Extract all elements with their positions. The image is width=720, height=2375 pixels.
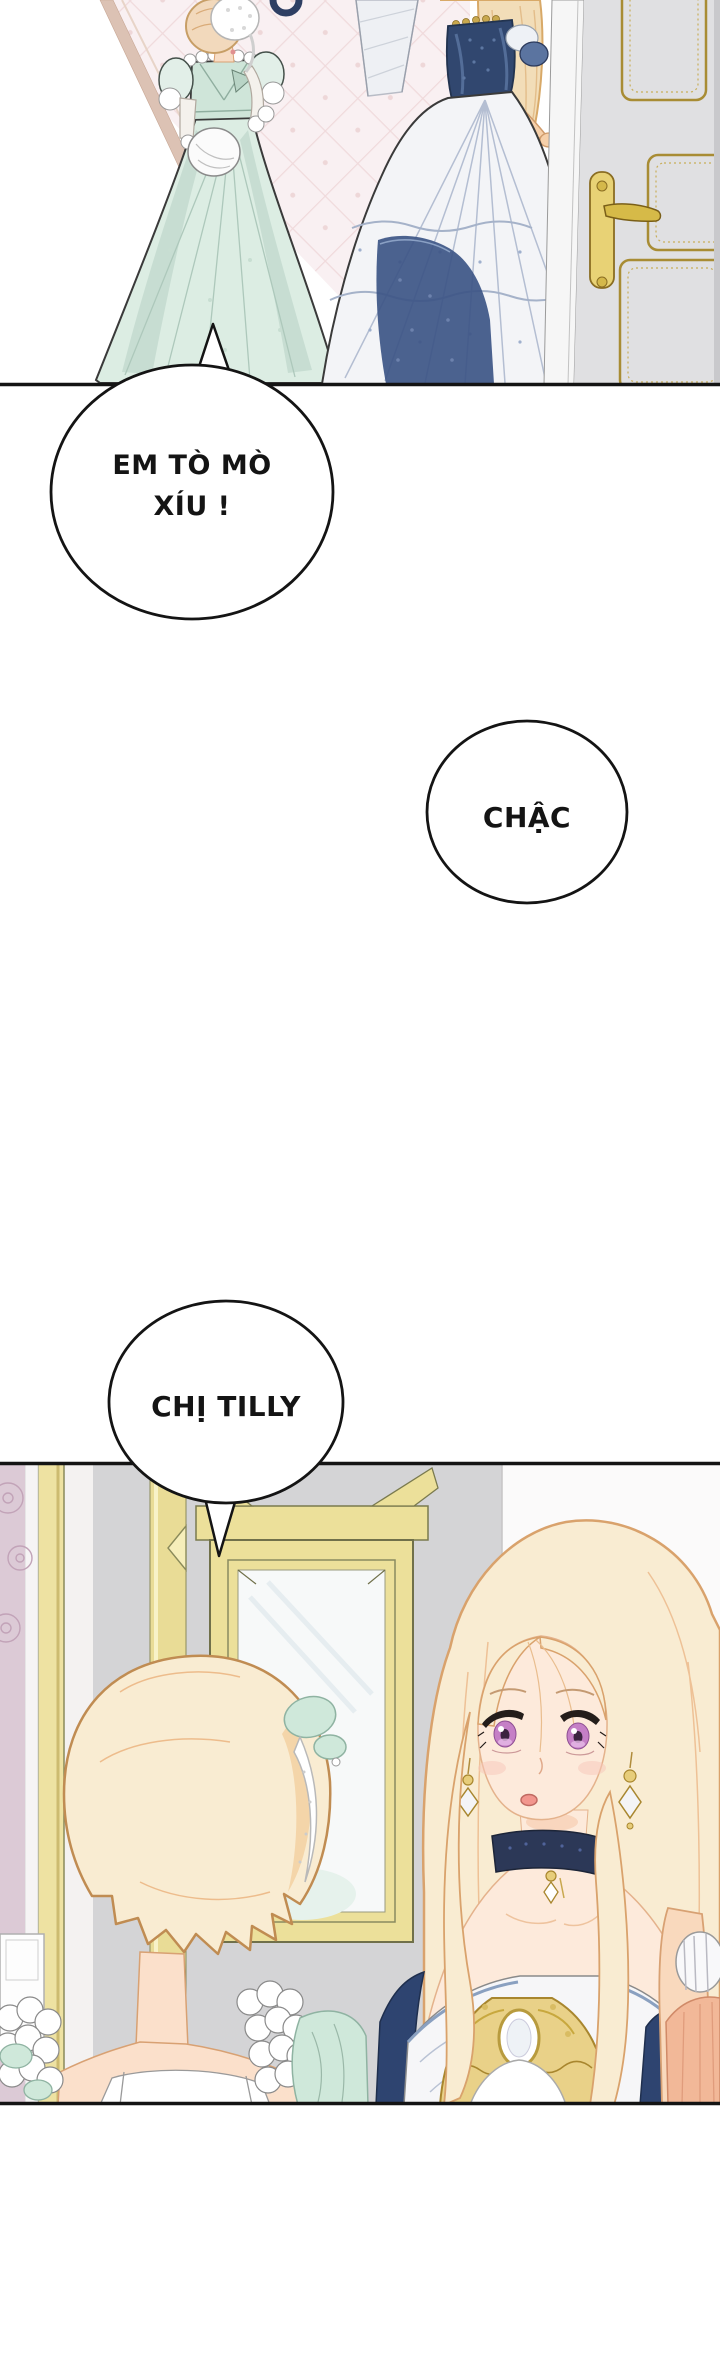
panel-bottom [0,1462,720,2105]
bubble-1-line-2: XÍU ! [32,487,352,528]
white-pouf [188,128,240,176]
bubble-1-line-1: EM TÒ MÒ [32,446,352,487]
earring-dot [231,50,236,55]
choker-pendant [546,1871,556,1881]
palace-door [544,0,720,390]
bubble-2-text: CHẬC [407,797,647,839]
lace-bonnet [211,0,259,40]
blush-left [478,1761,506,1775]
bubble-1-text: EM TÒ MÒ XÍU ! [32,446,352,527]
bubble-3-text: CHỊ TILLY [66,1386,386,1428]
bubble-3-line-1: CHỊ TILLY [66,1386,386,1428]
comic-page: EM TÒ MÒ XÍU ! CHẬC CHỊ TILLY [0,0,720,2375]
shoulder-frill-blue [520,42,548,66]
left-sleeve-frill [159,88,181,110]
blush-right [578,1761,606,1775]
bob-neck [136,1952,188,2048]
panel-top [0,0,720,390]
right-sleeve-frill [262,82,284,104]
door-edge-shadow [714,0,720,385]
puff-sleeve [676,1932,720,1992]
lace-glove-arm [180,98,196,140]
bubble-2-line-1: CHẬC [407,797,647,839]
comic-artwork [0,0,720,2375]
mint-sleeve-ruffles-left [0,1997,63,2100]
mouth [521,1795,537,1806]
